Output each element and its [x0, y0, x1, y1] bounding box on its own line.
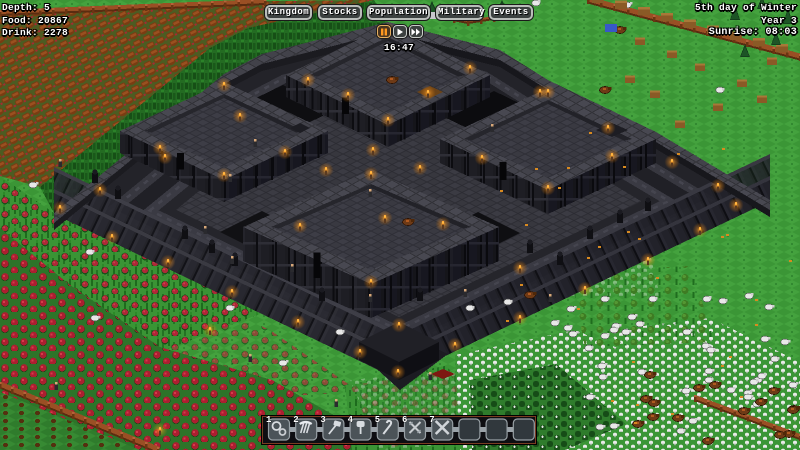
- svg-text:5: 5: [375, 415, 380, 425]
- svg-text:1: 1: [266, 415, 272, 425]
- svg-text:2: 2: [293, 415, 298, 425]
- svg-text:4: 4: [348, 415, 354, 425]
- svg-text:3: 3: [320, 415, 325, 425]
- svg-text:7: 7: [429, 415, 434, 425]
- svg-text:6: 6: [402, 415, 407, 425]
